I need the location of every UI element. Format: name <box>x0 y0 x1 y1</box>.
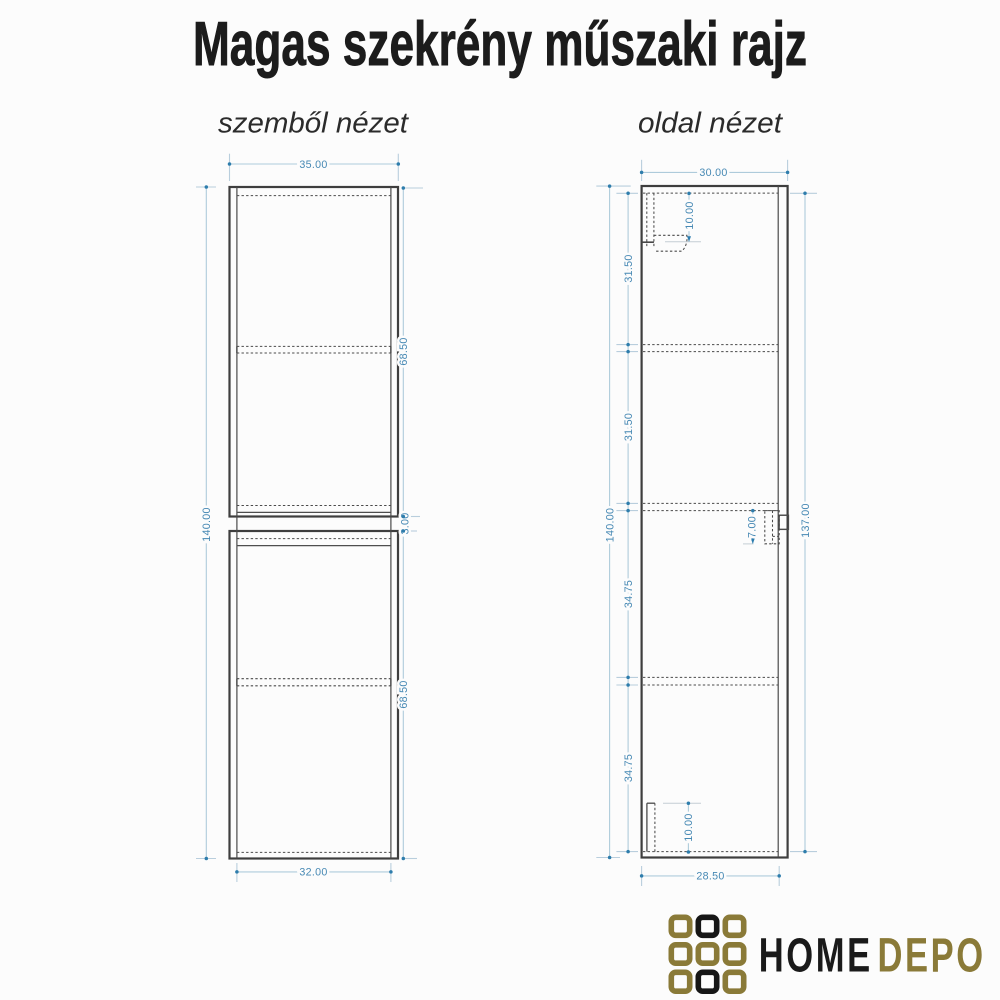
svg-text:28.50: 28.50 <box>696 871 724 883</box>
svg-text:10.00: 10.00 <box>683 813 695 841</box>
svg-text:68.50: 68.50 <box>398 680 410 708</box>
svg-text:7.00: 7.00 <box>746 516 758 538</box>
svg-text:34.75: 34.75 <box>623 754 635 782</box>
svg-text:szemből nézet: szemből nézet <box>218 108 410 140</box>
svg-text:35.00: 35.00 <box>299 159 327 171</box>
svg-text:HOME: HOME <box>759 928 873 982</box>
svg-text:10.00: 10.00 <box>684 201 696 229</box>
svg-text:140.00: 140.00 <box>201 507 213 542</box>
svg-text:31.50: 31.50 <box>623 254 635 282</box>
svg-text:68.50: 68.50 <box>398 337 410 365</box>
svg-text:Magas szekrény műszaki rajz: Magas szekrény műszaki rajz <box>193 10 807 79</box>
svg-text:137.00: 137.00 <box>800 503 812 538</box>
svg-text:32.00: 32.00 <box>299 867 327 879</box>
svg-text:DEPO: DEPO <box>877 928 985 982</box>
svg-text:31.50: 31.50 <box>623 413 635 441</box>
svg-text:34.75: 34.75 <box>623 580 635 608</box>
svg-text:oldal nézet: oldal nézet <box>638 108 784 140</box>
svg-text:3.00: 3.00 <box>399 512 411 534</box>
svg-text:140.00: 140.00 <box>604 508 616 543</box>
svg-text:30.00: 30.00 <box>699 167 727 179</box>
